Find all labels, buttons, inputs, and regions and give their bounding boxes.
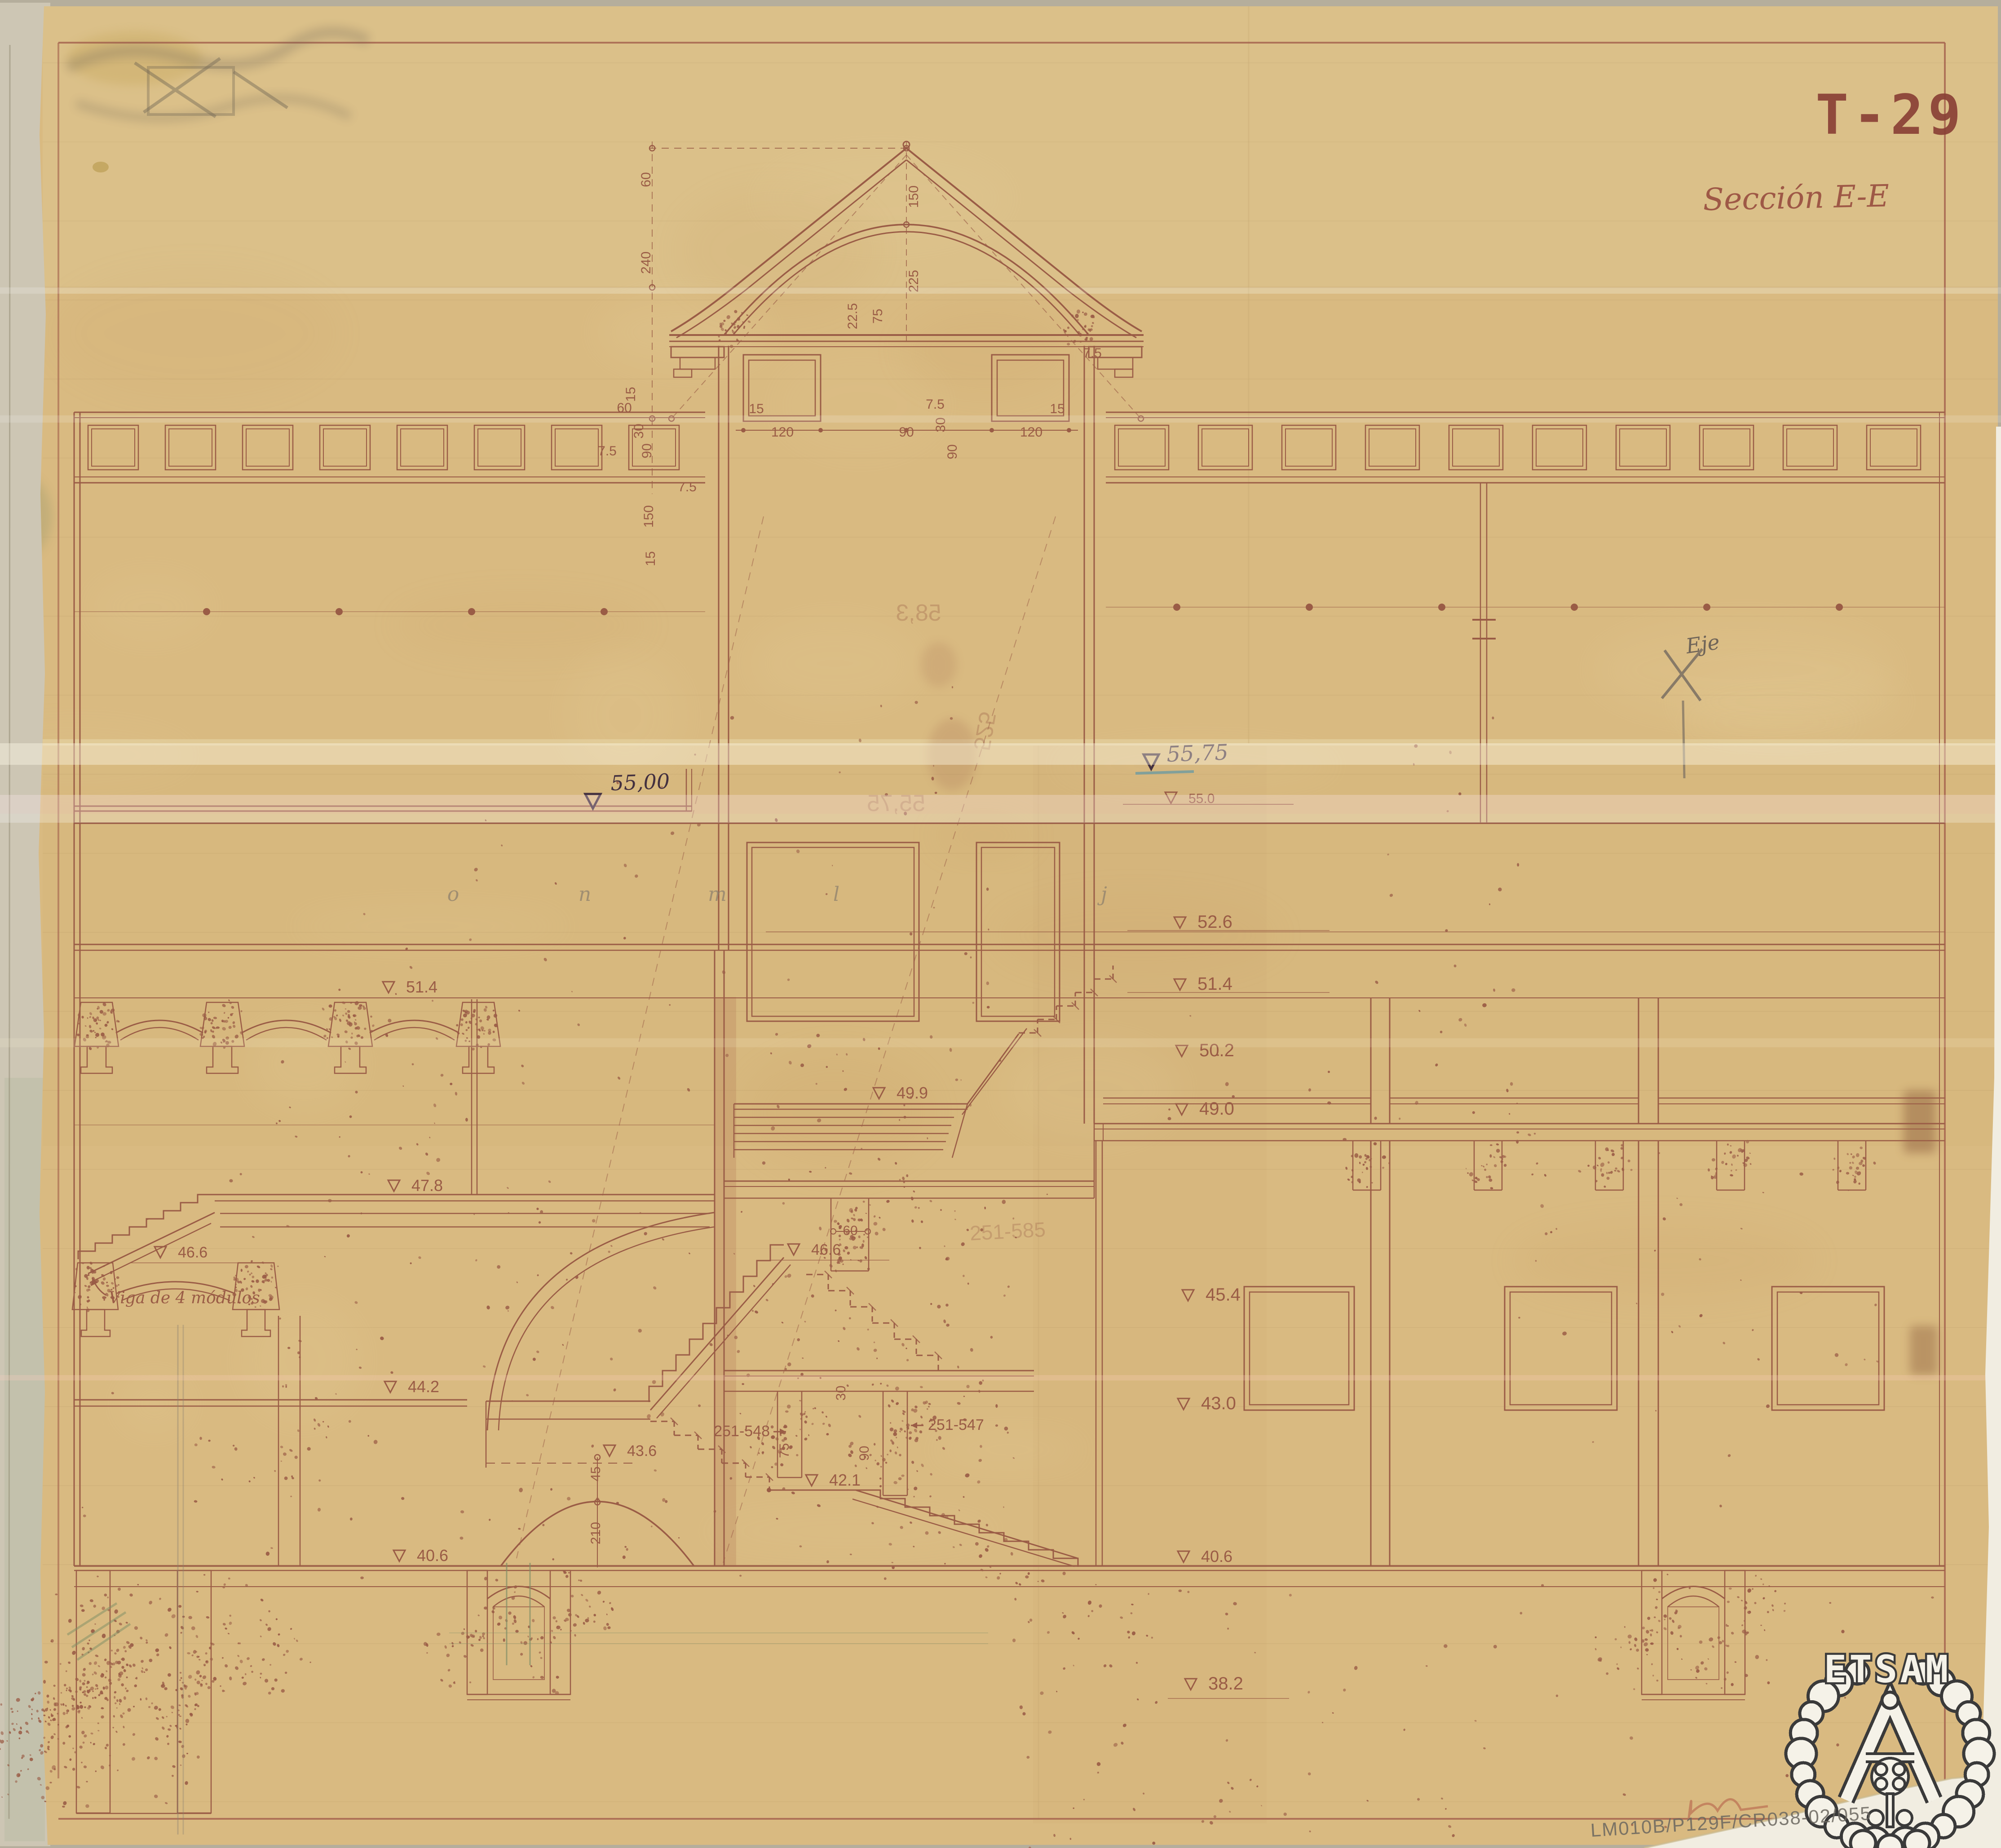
paper-blotch [242, 1298, 362, 1422]
dim-label: 7.5 [926, 397, 945, 412]
structure-dot [1703, 604, 1710, 611]
paper-blotch [1001, 1039, 1180, 1140]
dim-label: 150 [641, 505, 656, 528]
level-value: 49.9 [897, 1084, 928, 1102]
beam-note: Viga de 4 módulos [109, 1289, 260, 1307]
stain [93, 162, 109, 172]
paper-blotch [1672, 664, 1905, 739]
level-value: 46.6 [178, 1244, 208, 1261]
left-strip-shade [4, 1078, 45, 1841]
structure-dot [1438, 604, 1445, 611]
dim-label: 22.5 [845, 303, 860, 329]
scan-streak [0, 415, 2001, 423]
pencil-letter: o [447, 883, 459, 906]
stipple-dot [179, 1716, 181, 1717]
scan-streak [0, 743, 2001, 765]
scan-streak [0, 1375, 2001, 1380]
ghost-smudge [921, 642, 957, 687]
scan-streak [0, 1038, 2001, 1047]
stamp-compass-hinge [1882, 1692, 1898, 1708]
paper-blotch [290, 906, 571, 946]
tape-mark [1910, 1326, 1938, 1375]
tape-mark [1904, 1090, 1936, 1153]
level-value: 52.6 [1197, 912, 1232, 932]
scan-streak [0, 795, 2001, 814]
dim-label: 90 [945, 444, 960, 459]
dim-label: 15 [623, 387, 638, 401]
stamp-leaf [1877, 1835, 1903, 1848]
dim-label: 240 [639, 251, 654, 274]
scan-streak [0, 814, 2001, 823]
dim-label: 60 [843, 1223, 857, 1238]
stipple-dot [290, 1496, 292, 1497]
structure-dot [1571, 604, 1578, 611]
wall-smudge [715, 997, 736, 1565]
pencil-letter: n [579, 883, 591, 906]
level-value: 51.4 [1197, 974, 1232, 994]
dim-label: 15 [1050, 401, 1065, 416]
dim-label: 120 [1020, 425, 1042, 440]
level-value: 40.6 [417, 1546, 448, 1565]
dim-label: 7.5 [598, 444, 617, 459]
dim-label: 210 [588, 1522, 603, 1544]
level-value: 49.0 [1199, 1099, 1234, 1119]
dim-label: 90 [857, 1446, 872, 1460]
stipple-dot [863, 1234, 865, 1235]
dim-label: 15 [749, 401, 764, 416]
level-value: 47.8 [411, 1176, 443, 1195]
stamp-leaf [1897, 1810, 1912, 1826]
stipple-dot [893, 1432, 897, 1436]
paper-blotch [89, 574, 211, 641]
dim-label: 60 [639, 172, 654, 187]
dim-label: 7.5 [1083, 346, 1102, 361]
level-value: 43.6 [627, 1442, 657, 1460]
dim-label: 120 [771, 425, 794, 440]
stamp-leaf [1904, 1830, 1930, 1848]
dim-tick [741, 428, 746, 432]
sheet-code: T-29 [1815, 83, 1966, 147]
section-title: Sección E-E [1703, 178, 1890, 218]
level-value: 43.0 [1201, 1394, 1236, 1413]
level-value: 51.4 [406, 978, 437, 996]
paper-blotch [932, 1435, 1086, 1465]
structure-dot [601, 608, 608, 615]
stipple-dot [1727, 1143, 1729, 1146]
teal-underline [1135, 772, 1194, 773]
paper-blotch [901, 306, 1073, 396]
ghost-number: 58,3 [896, 600, 941, 626]
level-value: 42.1 [829, 1471, 861, 1489]
structure-dot [336, 608, 343, 615]
drawing-canvas: 55.052.651.450.249.045.443.040.638.251.4… [0, 0, 2001, 1848]
dim-tick [818, 428, 823, 432]
level-value: 55,00 [610, 769, 670, 795]
beam-ref-label: 251-547 [928, 1416, 984, 1433]
dim-label: 45 [588, 1466, 603, 1481]
level-value: 46.6 [811, 1241, 841, 1258]
dim-label: 90 [640, 443, 654, 458]
level-value: 40.6 [1201, 1547, 1232, 1566]
stamp-leaf [1851, 1830, 1876, 1848]
structure-dot [1306, 604, 1313, 611]
paper-blotch [248, 1018, 360, 1110]
paper-blotch [742, 1052, 932, 1171]
pencil-letter: m [708, 883, 727, 906]
dim-label: 30 [834, 1385, 848, 1400]
dim-label: 75 [777, 1443, 792, 1458]
structure-dot [468, 608, 475, 615]
paper-blotch [995, 895, 1281, 975]
structure-dot [203, 608, 210, 615]
dim-label: 7.5 [678, 480, 697, 494]
dim-label: 30 [632, 423, 646, 438]
stipple-dot [556, 1620, 558, 1623]
axis-note: Eje [1684, 630, 1721, 658]
axis-pencil-line [1683, 701, 1684, 778]
dim-label: 150 [906, 185, 921, 208]
structure-dot [1836, 604, 1843, 611]
dim-label: 15 [643, 551, 658, 566]
paper-blotch [393, 595, 650, 655]
ghost-beam-ref: 251-585 [969, 1217, 1046, 1245]
stipple-dot [186, 1719, 190, 1723]
scan-streak [0, 287, 2001, 294]
pencil-letter: l [833, 883, 839, 906]
paper-blotch [118, 1376, 191, 1433]
stamp-stem [1887, 1794, 1893, 1827]
dim-label: 60 [617, 401, 632, 415]
stipple-dot [104, 1593, 107, 1596]
structure-dot [1173, 604, 1180, 611]
level-value: 38.2 [1208, 1674, 1243, 1694]
dim-label: 90 [899, 425, 914, 440]
stamp-text: ETSAM [1824, 1647, 1951, 1691]
dim-tick [989, 428, 994, 432]
scanned-drawing-sheet: 55.052.651.450.249.045.443.040.638.251.4… [0, 0, 2001, 1848]
stipple-dot [901, 1474, 904, 1477]
dim-label: 75 [870, 309, 885, 323]
dim-tick [1067, 428, 1071, 432]
stipple-dot [1490, 1144, 1493, 1146]
strip-crease [9, 45, 10, 1819]
beam-ref-label: 251-548 [714, 1423, 770, 1440]
level-value: 45.4 [1206, 1285, 1241, 1305]
stipple-dot [1729, 1588, 1732, 1590]
